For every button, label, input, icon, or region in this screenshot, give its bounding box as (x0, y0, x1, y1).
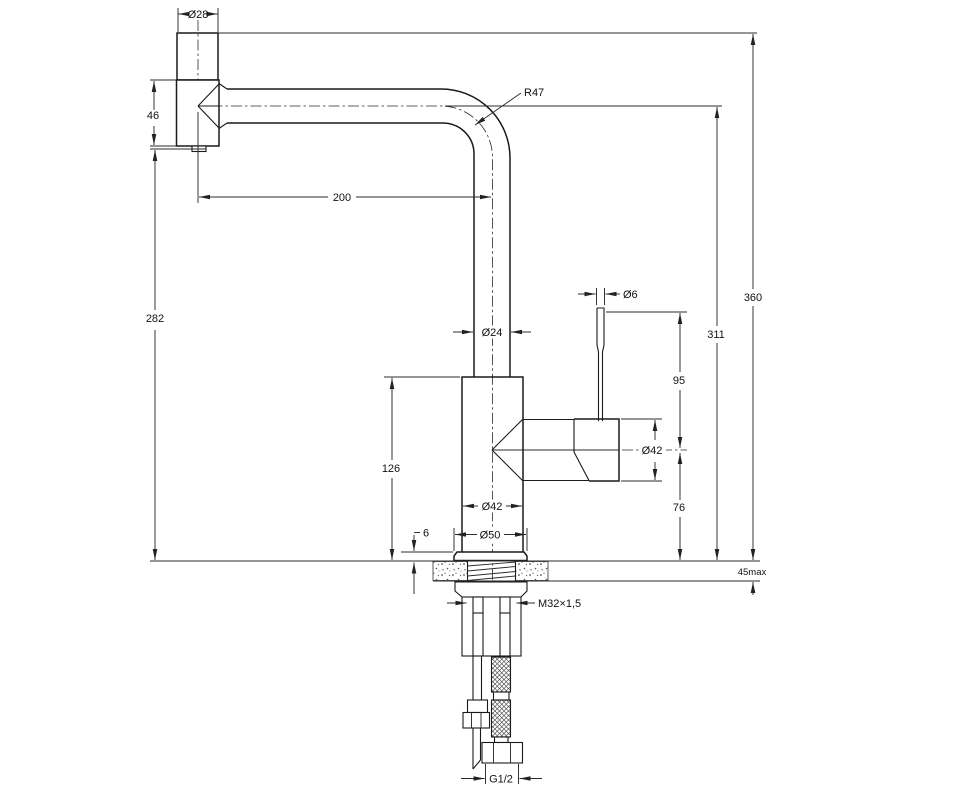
dim-label-shank-thread: M32×1,5 (538, 598, 581, 610)
dim-label-lever-height: 95 (673, 375, 685, 387)
copper-pipe-lower (473, 728, 481, 769)
counter-section-left (433, 562, 468, 581)
dim-label-valve-diameter: Ø42 (642, 445, 663, 457)
dim-spout-reach: 200 (199, 192, 491, 204)
braided-hose-lower (492, 700, 511, 737)
knurled-knob (177, 33, 218, 80)
nut-slot-right (500, 597, 510, 613)
spout-elbow-assembly (177, 33, 511, 377)
dim-lever-height: 95 (673, 313, 685, 448)
dim-label-supply-thread: G1/2 (489, 774, 513, 786)
copper-pipe-upper (473, 656, 482, 700)
counter-section-right (516, 562, 549, 581)
dim-label-valve-axis-height: 76 (673, 502, 685, 514)
spout-outer-edge (227, 89, 510, 377)
dim-label-body-height: 126 (382, 463, 400, 475)
dim-knob-diameter: Ø28 (179, 9, 218, 21)
dim-valve-axis-height: 76 (673, 453, 685, 560)
compression-collar (468, 700, 488, 713)
dim-outlet-height: 282 (146, 150, 164, 560)
dim-body-height: 126 (382, 378, 400, 560)
dim-lever-diameter: Ø6 (578, 289, 638, 301)
hose-end-collar (495, 737, 509, 743)
dim-label-elbow-height: 46 (147, 110, 159, 122)
lever-rod (597, 308, 604, 421)
dim-tube-diameter: Ø24 (453, 326, 531, 340)
dim-elbow-height: 46 (147, 81, 159, 145)
compression-nut (463, 713, 490, 729)
dim-label-spout-radius: R47 (524, 87, 544, 99)
dim-label-spout-axis-height: 311 (707, 329, 725, 341)
dim-label-lever-diameter: Ø6 (623, 289, 638, 301)
handle-lever (597, 308, 604, 421)
dim-valve-diameter: Ø42 (639, 420, 666, 480)
braided-hose-upper (492, 657, 511, 692)
base-flange (454, 552, 527, 561)
dim-label-overall-height: 360 (744, 292, 762, 304)
dim-spout-axis-height: 311 (707, 107, 725, 560)
dim-label-outlet-height: 282 (146, 313, 164, 325)
hose-ferrule (494, 692, 510, 700)
faucet-dimension-drawing: Ø28 46 R47 200 282 Ø6 360 (0, 0, 976, 789)
faucet-dimension-drawing-page: Ø28 46 R47 200 282 Ø6 360 (0, 0, 976, 789)
horseshoe-washer (455, 582, 527, 597)
dim-flange-diameter: Ø50 (455, 528, 526, 542)
dim-label-body-diameter: Ø42 (482, 501, 503, 513)
spout-inner-edge (227, 123, 474, 377)
dim-overall-height: 360 (744, 34, 762, 560)
dim-label-tube-diameter: Ø24 (482, 327, 503, 339)
dim-label-spout-reach: 200 (333, 192, 351, 204)
mounting-nut (462, 597, 521, 656)
dim-label-flange-thickness: 6 (423, 528, 429, 540)
dim-label-counter-thickness: 45max (738, 567, 767, 578)
nut-slot-left (473, 597, 483, 613)
supply-hoses (463, 656, 523, 769)
mounting-hardware (455, 582, 527, 656)
dim-body-diameter: Ø42 (463, 500, 522, 514)
dim-label-knob-diameter: Ø28 (188, 9, 209, 21)
dim-label-flange-diameter: Ø50 (480, 530, 501, 542)
hose-hex-nut (482, 743, 523, 764)
dim-counter-thickness: 45max (737, 566, 767, 595)
dim-supply-thread: G1/2 (461, 774, 542, 786)
